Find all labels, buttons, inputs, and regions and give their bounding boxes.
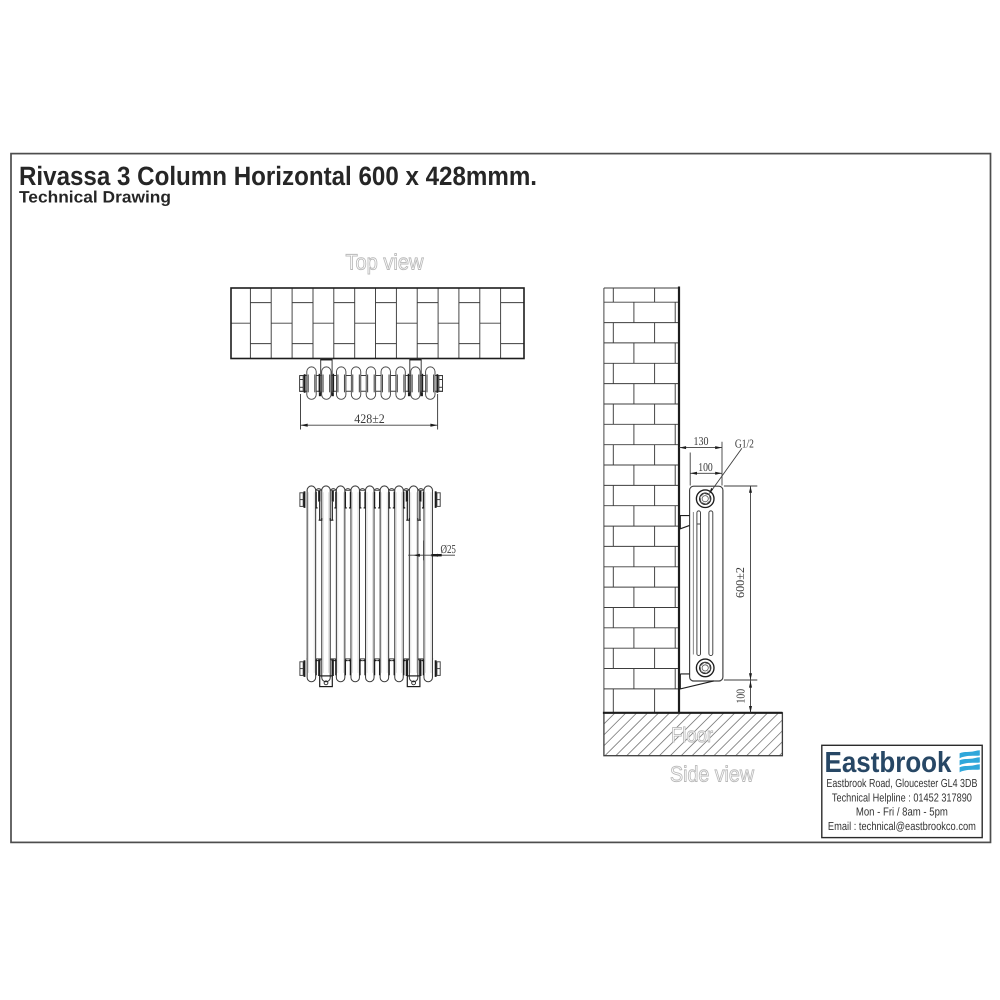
svg-text:Email : technical@eastbrookco.: Email : technical@eastbrookco.com xyxy=(828,820,976,833)
svg-text:Eastbrook Road, Gloucester GL4: Eastbrook Road, Gloucester GL4 3DB xyxy=(826,777,977,790)
svg-text:100: 100 xyxy=(698,460,713,474)
svg-text:Side view: Side view xyxy=(670,762,754,787)
svg-text:600±2: 600±2 xyxy=(733,567,747,598)
svg-text:Technical Drawing: Technical Drawing xyxy=(19,189,171,207)
svg-text:Ø25: Ø25 xyxy=(440,542,456,556)
svg-text:Mon - Fri / 8am - 5pm: Mon - Fri / 8am - 5pm xyxy=(856,806,948,819)
svg-text:Rivassa 3 Column Horizontal 60: Rivassa 3 Column Horizontal 600 x 428mmm… xyxy=(19,161,537,191)
svg-text:Top view: Top view xyxy=(346,250,424,275)
svg-text:Technical Helpline : 01452 317: Technical Helpline : 01452 317890 xyxy=(832,791,972,804)
svg-text:130: 130 xyxy=(694,434,709,448)
svg-text:Floor: Floor xyxy=(671,724,713,747)
svg-text:Eastbrook: Eastbrook xyxy=(825,747,953,779)
svg-text:428±2: 428±2 xyxy=(354,411,385,426)
svg-text:G1/2: G1/2 xyxy=(735,437,754,451)
svg-text:100: 100 xyxy=(734,689,748,704)
